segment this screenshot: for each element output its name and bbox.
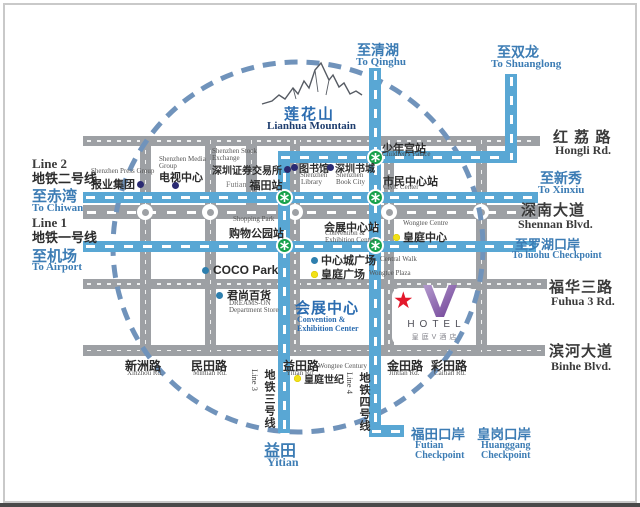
lianhua-mountain-label-en: Lianhua Mountain [267,120,356,132]
poi-wongtee-plaza-en: Wongtee Plaza [369,270,411,278]
dest-futian-checkpoint-en2: Checkpoint [415,450,464,461]
legend-to-chiwan-en: To Chiwan [32,202,83,214]
dest-luohu-en: To luohu Checkpoint [512,250,602,261]
poi-wongtee-century-en: Wongtee Century [318,363,367,371]
poi-dreams-on-en2: Department Store [229,307,279,315]
poi-media-group-cn: 电视中心 [159,169,203,185]
metro-logo-icon [280,241,289,250]
metro-line3-shuanglong-branch [505,74,517,163]
poi-wongtee-plaza-cn: 皇庭广场 [321,266,365,282]
metro-line4-label-en: Line 4 [345,372,355,432]
road-label-jintian-en: Jintian Rd. [389,370,419,378]
poi-stock-exchange-cn: 深圳证券交易所 [212,162,282,177]
road-label-binhe-en: Binhe Blvd. [551,359,611,374]
metro-logo-icon [371,193,380,202]
road-label-fuhua-en: Fuhua 3 Rd. [551,294,615,309]
metro-line4-label: Line 4 地铁四号线 [345,372,372,432]
hotel-location-map: 莲花山 Lianhua Mountain Line 2 地铁二号线 至赤湾 To… [0,0,640,507]
poi-dot-navy [291,164,298,171]
road-label-caitian-en: Caitian Rd. [434,370,466,378]
lianhua-mountain-sketch [258,60,368,108]
metro-line3-label: Line 3 地铁三号线 [250,369,277,429]
metro-line1 [83,241,536,252]
road-label-mintian-en: Mintian Rd. [193,370,227,378]
poi-central-walk-en: Central Walk [380,256,417,264]
road-label-hongli-en: Hongli Rd. [555,143,611,158]
station-futian-en: Futian [226,181,246,189]
dest-yitian-en: Yitian [267,455,299,470]
poi-library-en2: Library [301,179,322,187]
metro-line4-bend [369,425,404,437]
legend-to-airport-en: To Airport [32,261,82,273]
poi-press-group: 报业集团 [91,176,144,192]
road-label-binhe-cn: 滨河大道 [549,340,613,361]
dest-xinxiu-en: To Xinxiu [538,184,584,196]
poi-stock-exchange: 深圳证券交易所 [212,162,291,177]
metro-line3-label-en: Line 3 [250,369,260,429]
poi-dot-navy [327,164,334,171]
metro-line3-label-cn: 地铁三号线 [261,369,277,429]
road-label-shennan-en: Shennan Blvd. [518,217,593,232]
legend-line1-cn: 地铁一号线 [32,227,97,246]
poi-wongtee-centre: 皇庭中心 [393,229,447,245]
poi-dot-blue [311,257,318,264]
map-frame-bottom-bar [0,503,640,507]
hotel-v-logo-icon [419,284,461,318]
poi-wongtee-centre-en: Wongtee Centre [403,220,448,228]
station-shopping-park-cn: 购物公园站 [229,225,284,241]
station-futian-cn: 福田站 [249,177,282,193]
poi-dot-navy [137,181,144,188]
junction-ring [381,204,397,220]
poi-coco-park: COCO Park [202,263,278,277]
poi-dot-yellow [393,234,400,241]
poi-coco-park-label: COCO Park [213,263,278,277]
poi-wongtee-centre-cn: 皇庭中心 [403,229,447,245]
hongli-road [83,136,540,146]
poi-dot-yellow [311,271,318,278]
poi-wongtee-plaza: 皇庭广场 Wongtee Plaza [311,266,411,282]
station-civic-center-en: Civic Center [383,184,419,192]
hotel-name: HOTEL [392,319,476,330]
metro-station-icon-civic-center [367,189,384,206]
station-convention-en2: Exhibition Center [325,237,375,245]
poi-dot-navy [284,166,291,173]
dest-huanggang-checkpoint-en2: Checkpoint [481,450,530,461]
station-label-futian: Futian 福田站 [226,177,282,193]
dest-shuanglong-en: To Shuanglong [491,58,561,70]
junction-ring [137,204,153,220]
poi-press-group-cn: 报业集团 [91,176,135,192]
hotel-star-icon: ★ [393,289,414,312]
dest-qinghu-en: To Qinghu [356,56,406,68]
station-shopping-park-en: Shopping Park [233,216,274,224]
junction-ring [202,204,218,220]
poi-convention-centre-en2: Exhibition Center [297,325,359,334]
road-label-xinzhou-en: Xinzhou Rd. [127,370,163,378]
station-children-palace-en: Children's Palace [382,151,431,159]
metro-line4-label-cn: 地铁四号线 [356,372,372,432]
poi-dot-blue [202,267,209,274]
hotel-name-cn: 皇庭V酒店 [392,332,476,342]
poi-press-group-en: Shenzhen Press Group [91,168,154,176]
metro-logo-icon [280,193,289,202]
metro-line2 [83,192,538,203]
poi-dot-blue [216,292,223,299]
poi-book-city-en2: Book City [336,179,365,187]
junction-ring [473,204,489,220]
road-label-yitian-en: Yitian Rd. [286,370,315,378]
